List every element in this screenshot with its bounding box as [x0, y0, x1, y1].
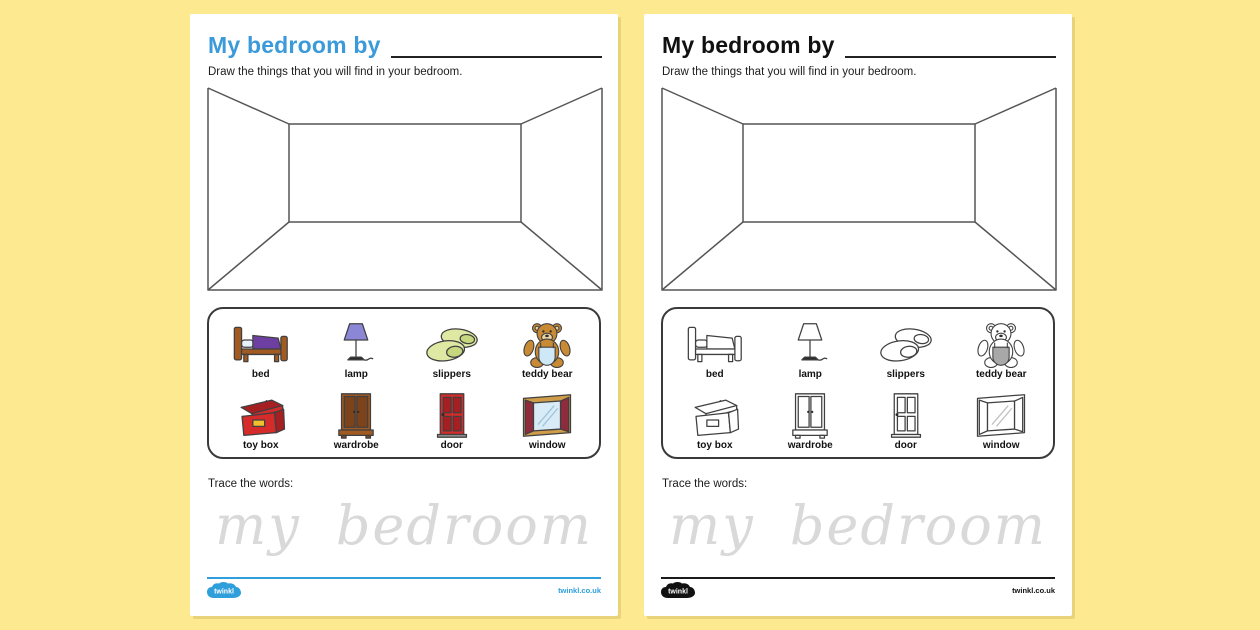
trace-words[interactable]: my bedroom — [190, 488, 618, 564]
worksheet-page-black-white: My bedroom by Draw the things that you w… — [644, 14, 1072, 616]
list-item: lamp — [763, 312, 859, 383]
item-label: door — [441, 440, 463, 451]
list-item: toy box — [667, 383, 763, 454]
footer-divider — [661, 577, 1055, 579]
list-item: teddy bear — [954, 312, 1050, 383]
list-item: teddy bear — [500, 312, 596, 383]
trace-words[interactable]: my bedroom — [644, 488, 1072, 564]
items-box: bed lamp slippers — [207, 307, 601, 459]
teddy-bear-icon — [518, 321, 576, 368]
window-icon — [972, 392, 1030, 439]
title-row: My bedroom by — [208, 30, 602, 58]
list-item: wardrobe — [763, 383, 859, 454]
door-icon — [877, 392, 935, 439]
item-label: toy box — [697, 440, 733, 451]
instruction-text: Draw the things that you will find in yo… — [662, 66, 916, 78]
instruction-text: Draw the things that you will find in yo… — [208, 66, 462, 78]
door-icon — [423, 392, 481, 439]
slippers-icon — [877, 321, 935, 368]
window-icon — [518, 392, 576, 439]
items-box: bed lamp slippers — [661, 307, 1055, 459]
toy-box-icon — [232, 392, 290, 439]
brand-url: twinkl.co.uk — [1012, 586, 1055, 595]
item-label: lamp — [345, 369, 368, 380]
item-label: bed — [252, 369, 270, 380]
item-label: wardrobe — [334, 440, 379, 451]
name-write-line[interactable] — [845, 32, 1056, 58]
title-row: My bedroom by — [662, 30, 1056, 58]
list-item: window — [500, 383, 596, 454]
item-label: teddy bear — [976, 369, 1027, 380]
list-item: door — [858, 383, 954, 454]
empty-room-drawing-area[interactable] — [660, 86, 1058, 292]
wardrobe-icon — [781, 392, 839, 439]
svg-text:twinkl: twinkl — [668, 589, 688, 596]
page-title: My bedroom by — [662, 32, 835, 58]
footer-divider — [207, 577, 601, 579]
toy-box-icon — [686, 392, 744, 439]
list-item: bed — [667, 312, 763, 383]
item-label: window — [983, 440, 1020, 451]
item-label: lamp — [799, 369, 822, 380]
list-item: lamp — [309, 312, 405, 383]
empty-room-drawing-area[interactable] — [206, 86, 604, 292]
item-label: teddy bear — [522, 369, 573, 380]
lamp-icon — [327, 321, 385, 368]
list-item: slippers — [404, 312, 500, 383]
twinkl-logo: twinkl — [206, 581, 242, 600]
worksheet-page-colour: My bedroom by Draw the things that you w… — [190, 14, 618, 616]
slippers-icon — [423, 321, 481, 368]
page-title: My bedroom by — [208, 32, 381, 58]
item-label: toy box — [243, 440, 279, 451]
item-label: window — [529, 440, 566, 451]
item-label: wardrobe — [788, 440, 833, 451]
item-label: slippers — [887, 369, 925, 380]
wardrobe-icon — [327, 392, 385, 439]
item-label: bed — [706, 369, 724, 380]
list-item: window — [954, 383, 1050, 454]
teddy-bear-icon — [972, 321, 1030, 368]
brand-url: twinkl.co.uk — [558, 586, 601, 595]
list-item: slippers — [858, 312, 954, 383]
list-item: bed — [213, 312, 309, 383]
bed-icon — [232, 321, 290, 368]
list-item: wardrobe — [309, 383, 405, 454]
name-write-line[interactable] — [391, 32, 602, 58]
lamp-icon — [781, 321, 839, 368]
list-item: toy box — [213, 383, 309, 454]
item-label: door — [895, 440, 917, 451]
bed-icon — [686, 321, 744, 368]
twinkl-logo: twinkl — [660, 581, 696, 600]
item-label: slippers — [433, 369, 471, 380]
list-item: door — [404, 383, 500, 454]
svg-text:twinkl: twinkl — [214, 589, 234, 596]
